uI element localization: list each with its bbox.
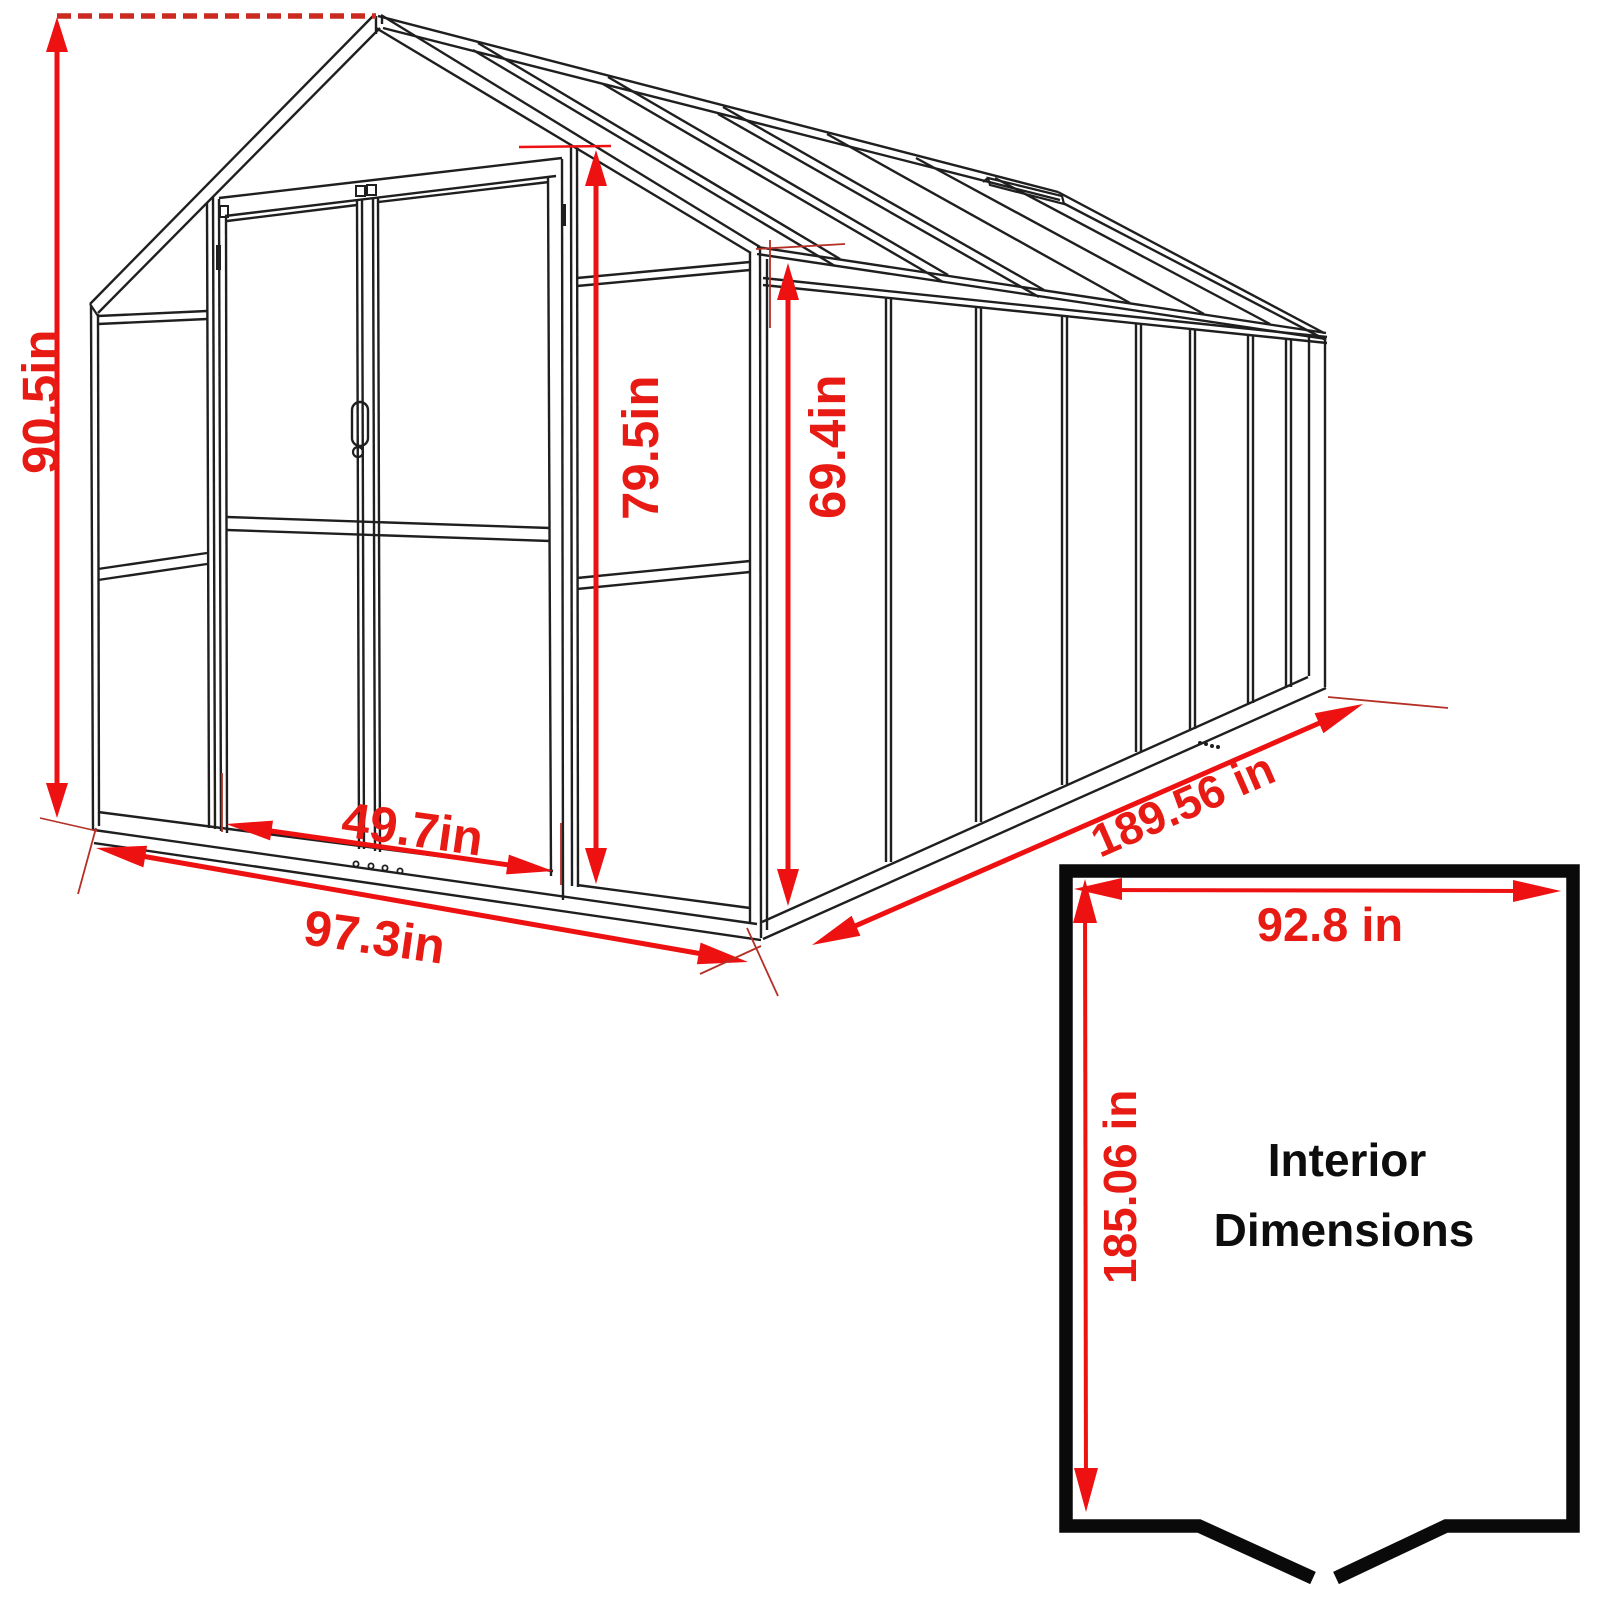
svg-text:92.8 in: 92.8 in xyxy=(1257,898,1403,951)
svg-text:90.5in: 90.5in xyxy=(12,329,69,474)
svg-text:185.06 in: 185.06 in xyxy=(1094,1090,1146,1284)
svg-text:Dimensions: Dimensions xyxy=(1214,1204,1475,1256)
svg-text:79.5in: 79.5in xyxy=(612,375,669,520)
svg-text:69.4in: 69.4in xyxy=(799,374,856,519)
svg-text:Interior: Interior xyxy=(1268,1134,1427,1186)
